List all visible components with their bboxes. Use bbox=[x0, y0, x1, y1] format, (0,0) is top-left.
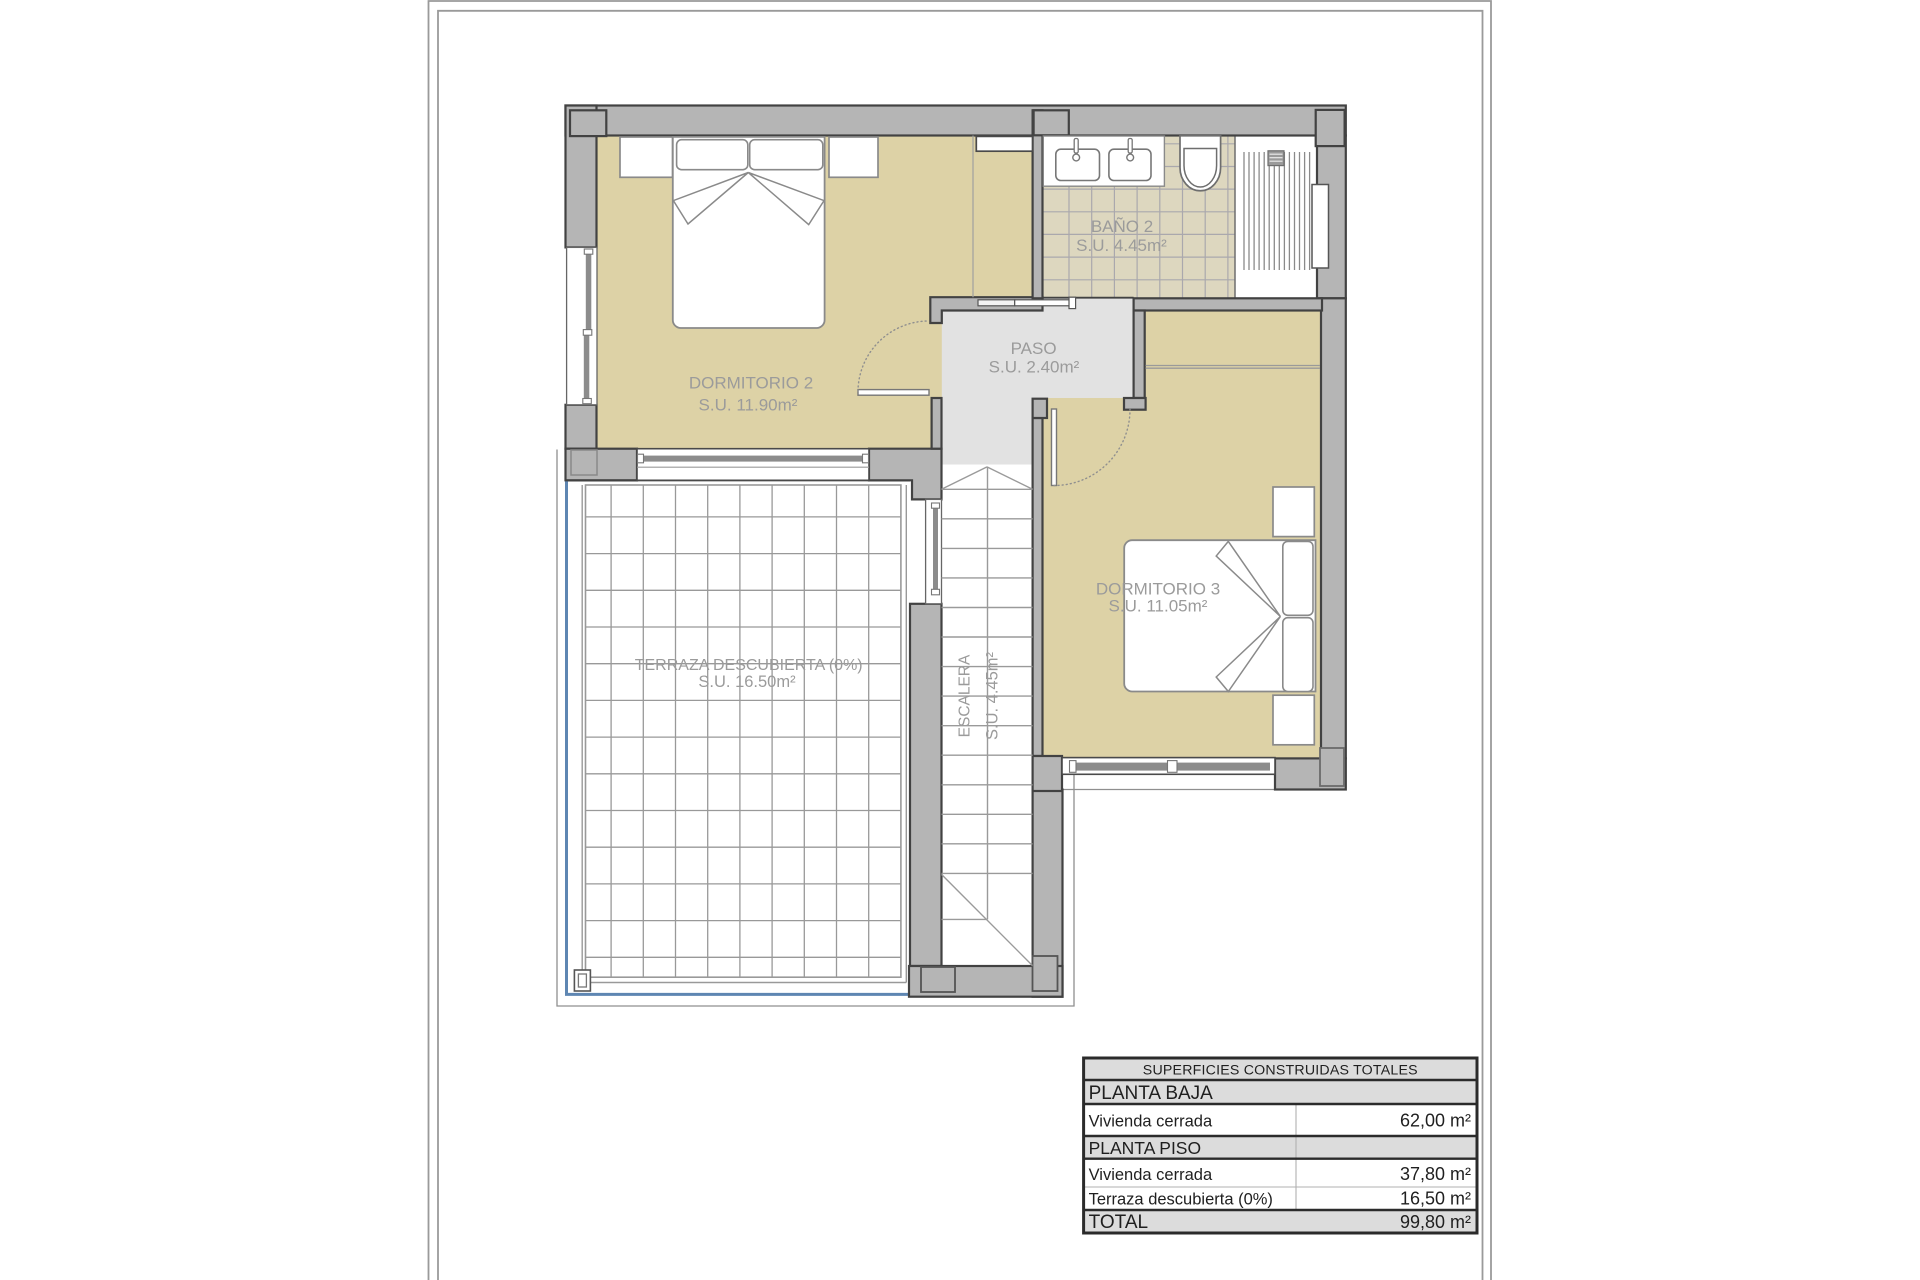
svg-text:Vivienda cerrada: Vivienda cerrada bbox=[1089, 1113, 1213, 1131]
svg-text:PLANTA PISO: PLANTA PISO bbox=[1089, 1138, 1202, 1158]
svg-text:37,80 m²: 37,80 m² bbox=[1400, 1164, 1471, 1184]
svg-text:Terraza descubierta (0%): Terraza descubierta (0%) bbox=[1089, 1191, 1273, 1209]
svg-text:16,50 m²: 16,50 m² bbox=[1400, 1189, 1471, 1209]
svg-text:S.U. 11.05m²: S.U. 11.05m² bbox=[1109, 597, 1208, 616]
svg-text:S.U. 16.50m²: S.U. 16.50m² bbox=[698, 673, 796, 691]
svg-text:ESCALERA: ESCALERA bbox=[957, 654, 974, 737]
svg-text:62,00 m²: 62,00 m² bbox=[1400, 1111, 1471, 1131]
svg-text:S.U. 4.45m²: S.U. 4.45m² bbox=[984, 651, 1002, 740]
svg-text:PASO: PASO bbox=[1011, 339, 1057, 358]
svg-text:S.U. 2.40m²: S.U. 2.40m² bbox=[989, 358, 1080, 377]
svg-text:BAÑO 2: BAÑO 2 bbox=[1091, 217, 1153, 236]
svg-text:Vivienda cerrada: Vivienda cerrada bbox=[1089, 1166, 1213, 1184]
svg-text:PLANTA BAJA: PLANTA BAJA bbox=[1089, 1083, 1214, 1104]
svg-text:SUPERFICIES CONSTRUIDAS TOTALE: SUPERFICIES CONSTRUIDAS TOTALES bbox=[1143, 1063, 1418, 1079]
svg-text:S.U. 4.45m²: S.U. 4.45m² bbox=[1076, 236, 1167, 255]
svg-text:S.U. 11.90m²: S.U. 11.90m² bbox=[699, 396, 798, 415]
svg-text:99,80 m²: 99,80 m² bbox=[1400, 1212, 1471, 1232]
svg-text:DORMITORIO 2: DORMITORIO 2 bbox=[689, 374, 813, 393]
svg-text:TERRAZA DESCUBIERTA (0%): TERRAZA DESCUBIERTA (0%) bbox=[635, 657, 863, 674]
svg-text:TOTAL: TOTAL bbox=[1089, 1212, 1148, 1233]
